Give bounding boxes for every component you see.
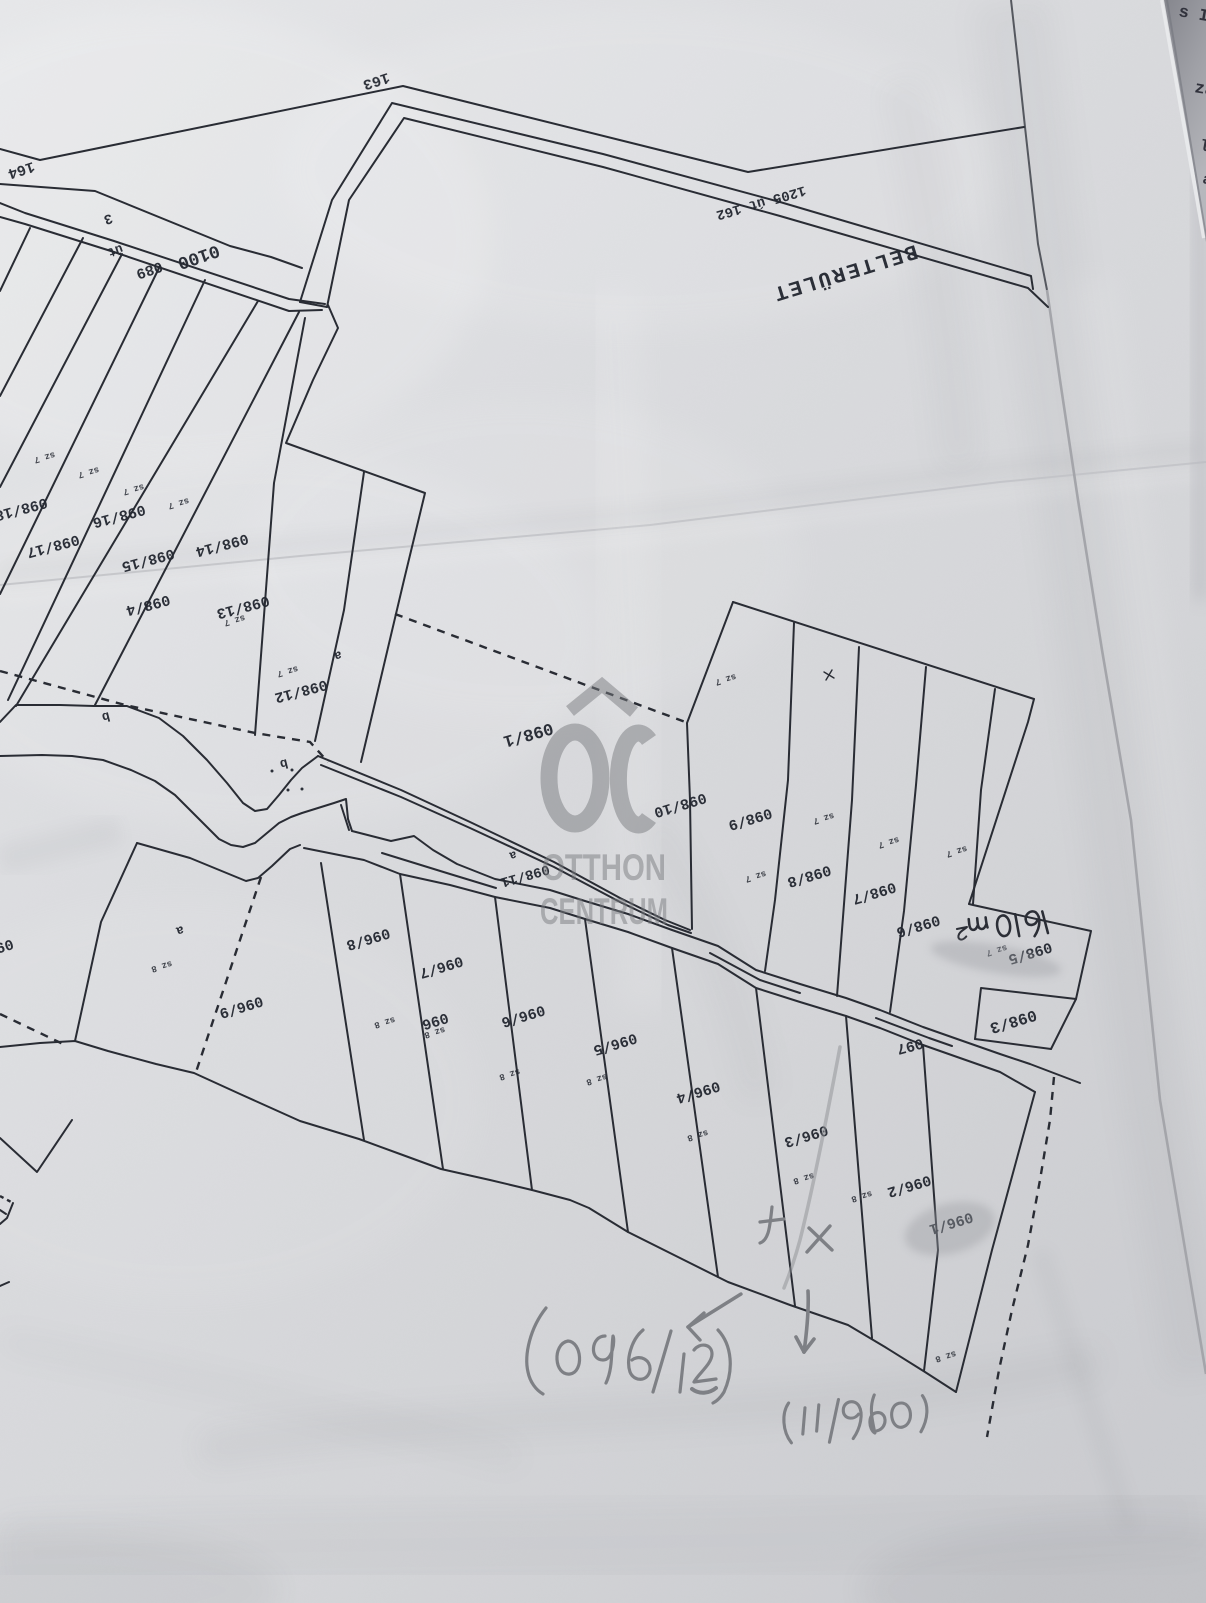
- svg-text:CENTRUM: CENTRUM: [540, 891, 668, 932]
- svg-text:OTTHON: OTTHON: [542, 847, 666, 888]
- svg-text:zá: zá: [1193, 79, 1206, 101]
